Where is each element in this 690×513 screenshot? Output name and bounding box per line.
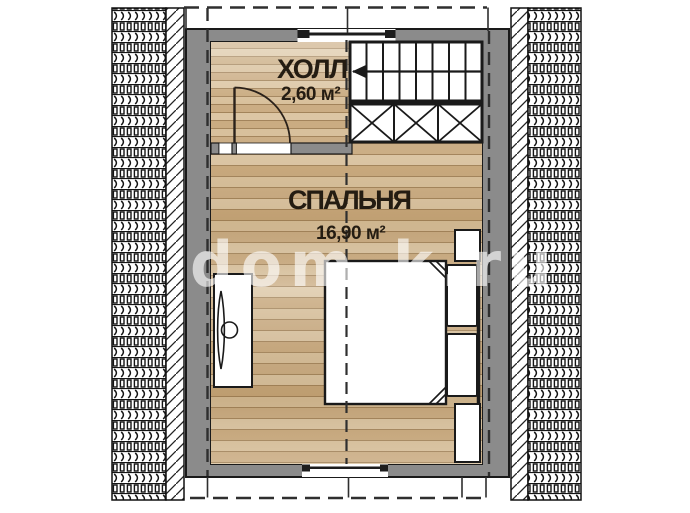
- roof-eave-hatch-left: [166, 8, 184, 500]
- interior-partition-wall: [211, 143, 352, 154]
- hall-room-label: ХОЛЛ: [277, 54, 347, 85]
- built-in-wardrobe-icon: [350, 104, 482, 142]
- floor-plan-canvas: ХОЛЛ 2,60 м² СПАЛЬНЯ 16,90 м² dom-k.ru: [0, 0, 690, 513]
- roof-shingles-left: [112, 8, 166, 500]
- hall-area-label: 2,60 м²: [281, 84, 340, 106]
- nightstand-bottom: [455, 404, 480, 462]
- staircase-icon: [350, 42, 482, 101]
- site-watermark: dom-k.ru: [190, 228, 559, 301]
- window-bottom: [302, 464, 388, 477]
- bedroom-room-label: СПАЛЬНЯ: [288, 185, 410, 216]
